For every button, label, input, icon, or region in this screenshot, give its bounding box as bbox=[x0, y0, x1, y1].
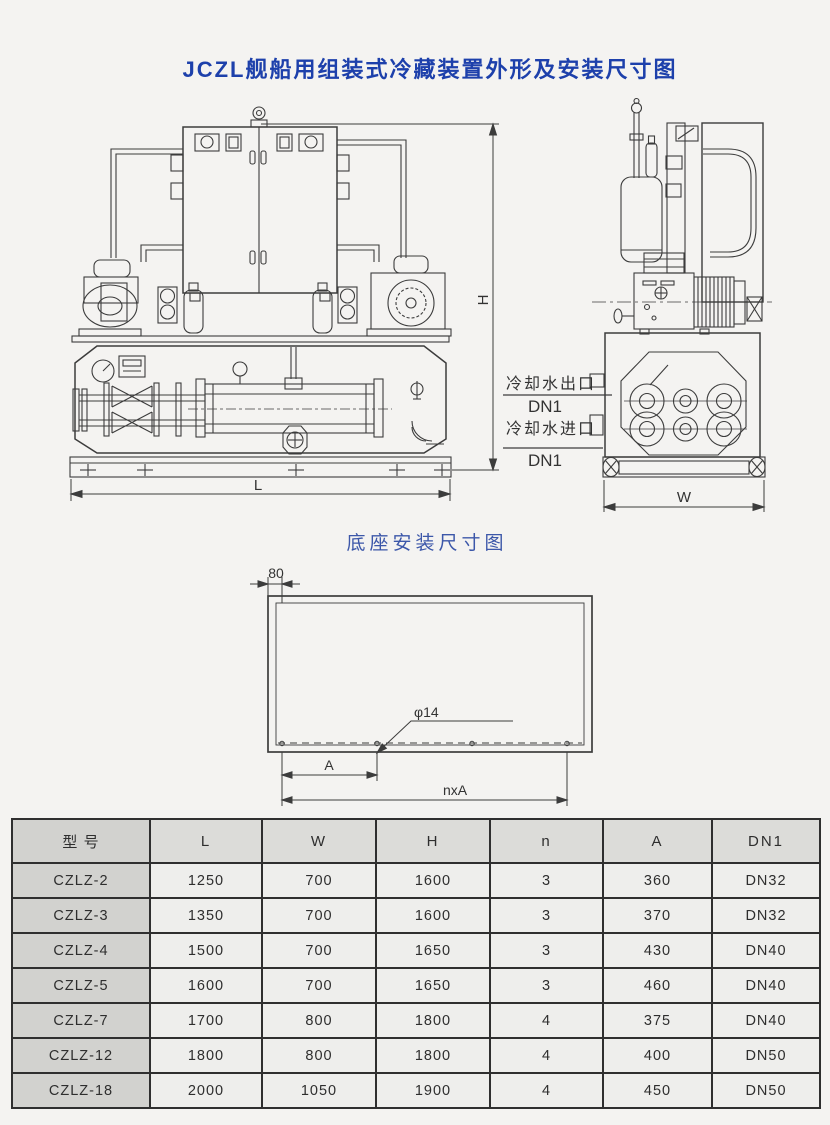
cell: 1600 bbox=[376, 863, 490, 898]
cell-model: CZLZ-7 bbox=[12, 1003, 150, 1038]
cell: 1650 bbox=[376, 933, 490, 968]
cell: 3 bbox=[490, 863, 603, 898]
cooling-outlet-dn: DN1 bbox=[528, 397, 562, 416]
side-view bbox=[590, 99, 772, 478]
cell: 1800 bbox=[376, 1038, 490, 1073]
cell: 1250 bbox=[150, 863, 262, 898]
header-model: 型 号 bbox=[12, 819, 150, 863]
cooling-inlet-label: 冷却水进口 bbox=[506, 420, 596, 438]
cell: 1350 bbox=[150, 898, 262, 933]
cell-model: CZLZ-12 bbox=[12, 1038, 150, 1073]
cell: 2000 bbox=[150, 1073, 262, 1108]
table-header-row: 型 号 L W H n A DN1 bbox=[12, 819, 820, 863]
cell: 1700 bbox=[150, 1003, 262, 1038]
cell: 3 bbox=[490, 968, 603, 1003]
cell: 400 bbox=[603, 1038, 712, 1073]
table-row: CZLZ-2 1250 700 1600 3 360 DN32 bbox=[12, 863, 820, 898]
cell: 1800 bbox=[150, 1038, 262, 1073]
cell-model: CZLZ-5 bbox=[12, 968, 150, 1003]
cell: 700 bbox=[262, 863, 376, 898]
cell: 700 bbox=[262, 968, 376, 1003]
base-dim-total: nxA bbox=[443, 782, 468, 798]
cell-model: CZLZ-4 bbox=[12, 933, 150, 968]
header-L: L bbox=[150, 819, 262, 863]
valve-stations bbox=[158, 283, 357, 333]
base-installation-diagram bbox=[250, 577, 592, 806]
cell: 1800 bbox=[376, 1003, 490, 1038]
dimension-lines bbox=[71, 124, 764, 512]
cell: DN40 bbox=[712, 933, 820, 968]
cell-model: CZLZ-3 bbox=[12, 898, 150, 933]
base-dim-edge-offset: 80 bbox=[268, 565, 284, 581]
header-DN1: DN1 bbox=[712, 819, 820, 863]
cell: 3 bbox=[490, 933, 603, 968]
table-row: CZLZ-5 1600 700 1650 3 460 DN40 bbox=[12, 968, 820, 1003]
cell-model: CZLZ-18 bbox=[12, 1073, 150, 1108]
header-A: A bbox=[603, 819, 712, 863]
table-row: CZLZ-7 1700 800 1800 4 375 DN40 bbox=[12, 1003, 820, 1038]
header-W: W bbox=[262, 819, 376, 863]
base-hole-diameter: φ14 bbox=[414, 704, 439, 720]
table-row: CZLZ-3 1350 700 1600 3 370 DN32 bbox=[12, 898, 820, 933]
dim-label-L: L bbox=[254, 477, 262, 494]
compressor-side bbox=[614, 273, 745, 334]
cell: 430 bbox=[603, 933, 712, 968]
table-row: CZLZ-4 1500 700 1650 3 430 DN40 bbox=[12, 933, 820, 968]
cell: 4 bbox=[490, 1003, 603, 1038]
table-row: CZLZ-12 1800 800 1800 4 400 DN50 bbox=[12, 1038, 820, 1073]
scanned-technical-page: { "page": { "title": "JCZL舰船用组装式冷藏装置外形及安… bbox=[0, 0, 830, 1125]
cell: 4 bbox=[490, 1038, 603, 1073]
left-compressor bbox=[79, 260, 141, 336]
condenser-front bbox=[188, 379, 392, 437]
cell: 1500 bbox=[150, 933, 262, 968]
base-dim-pitch: A bbox=[324, 757, 334, 773]
cell: 1650 bbox=[376, 968, 490, 1003]
cell: DN32 bbox=[712, 898, 820, 933]
condenser-tubes-end-view bbox=[624, 365, 747, 446]
cell: 800 bbox=[262, 1003, 376, 1038]
cell: DN50 bbox=[712, 1073, 820, 1108]
cell: 1050 bbox=[262, 1073, 376, 1108]
base-rail-side bbox=[603, 457, 765, 477]
cell: DN40 bbox=[712, 968, 820, 1003]
cell: DN50 bbox=[712, 1038, 820, 1073]
cell: 450 bbox=[603, 1073, 712, 1108]
cell-model: CZLZ-2 bbox=[12, 863, 150, 898]
cell: DN32 bbox=[712, 863, 820, 898]
specification-table: 型 号 L W H n A DN1 CZLZ-2 1250 700 1600 3… bbox=[11, 818, 821, 1109]
cooling-water-callouts: 冷却水出口 DN1 冷却水进口 DN1 bbox=[503, 375, 612, 470]
dim-label-W: W bbox=[677, 489, 692, 506]
table-row: CZLZ-18 2000 1050 1900 4 450 DN50 bbox=[12, 1073, 820, 1108]
cell: 460 bbox=[603, 968, 712, 1003]
dim-label-H: H bbox=[475, 295, 492, 306]
right-compressor bbox=[367, 256, 451, 336]
cell: 1600 bbox=[376, 898, 490, 933]
cell: 370 bbox=[603, 898, 712, 933]
cell: 700 bbox=[262, 898, 376, 933]
foundation-bolt-marks bbox=[80, 464, 450, 476]
accumulator bbox=[621, 177, 662, 262]
header-n: n bbox=[490, 819, 603, 863]
cell: DN40 bbox=[712, 1003, 820, 1038]
cell: 375 bbox=[603, 1003, 712, 1038]
pump-front bbox=[283, 426, 307, 454]
cell: 1600 bbox=[150, 968, 262, 1003]
cell: 700 bbox=[262, 933, 376, 968]
header-H: H bbox=[376, 819, 490, 863]
cell: 1900 bbox=[376, 1073, 490, 1108]
cooling-outlet-label: 冷却水出口 bbox=[506, 375, 596, 393]
front-view bbox=[70, 107, 451, 477]
cell: 4 bbox=[490, 1073, 603, 1108]
cell: 360 bbox=[603, 863, 712, 898]
cell: 800 bbox=[262, 1038, 376, 1073]
technical-drawing: L H W 冷却水出口 DN1 冷却水进口 DN1 80 φ14 A nxA bbox=[0, 0, 830, 812]
cell: 3 bbox=[490, 898, 603, 933]
cooling-inlet-dn: DN1 bbox=[528, 451, 562, 470]
